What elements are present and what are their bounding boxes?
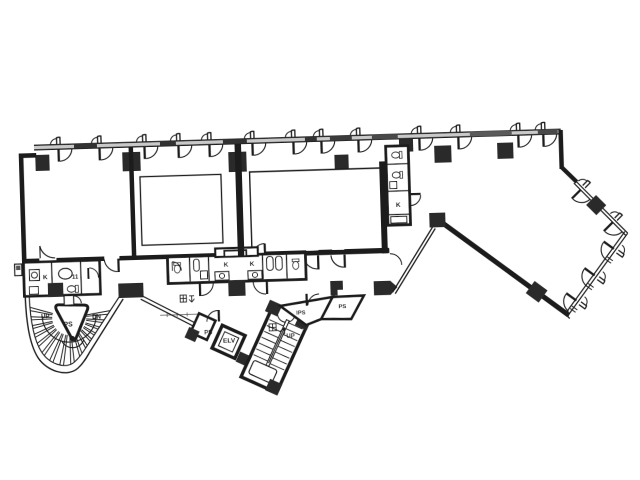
svg-text:UP: UP	[41, 314, 50, 320]
svg-text:PS: PS	[63, 321, 73, 328]
svg-text:PS: PS	[338, 304, 346, 310]
svg-text:K: K	[250, 261, 255, 268]
svg-text:UP: UP	[286, 334, 295, 340]
svg-text:PS: PS	[204, 330, 212, 336]
svg-text:DN: DN	[92, 315, 101, 321]
svg-text:K: K	[396, 202, 401, 209]
svg-text:11: 11	[72, 275, 79, 281]
svg-text:K: K	[43, 274, 48, 281]
svg-text:ELV: ELV	[223, 337, 236, 344]
svg-text:IPS: IPS	[296, 310, 306, 316]
svg-text:K: K	[224, 262, 229, 269]
